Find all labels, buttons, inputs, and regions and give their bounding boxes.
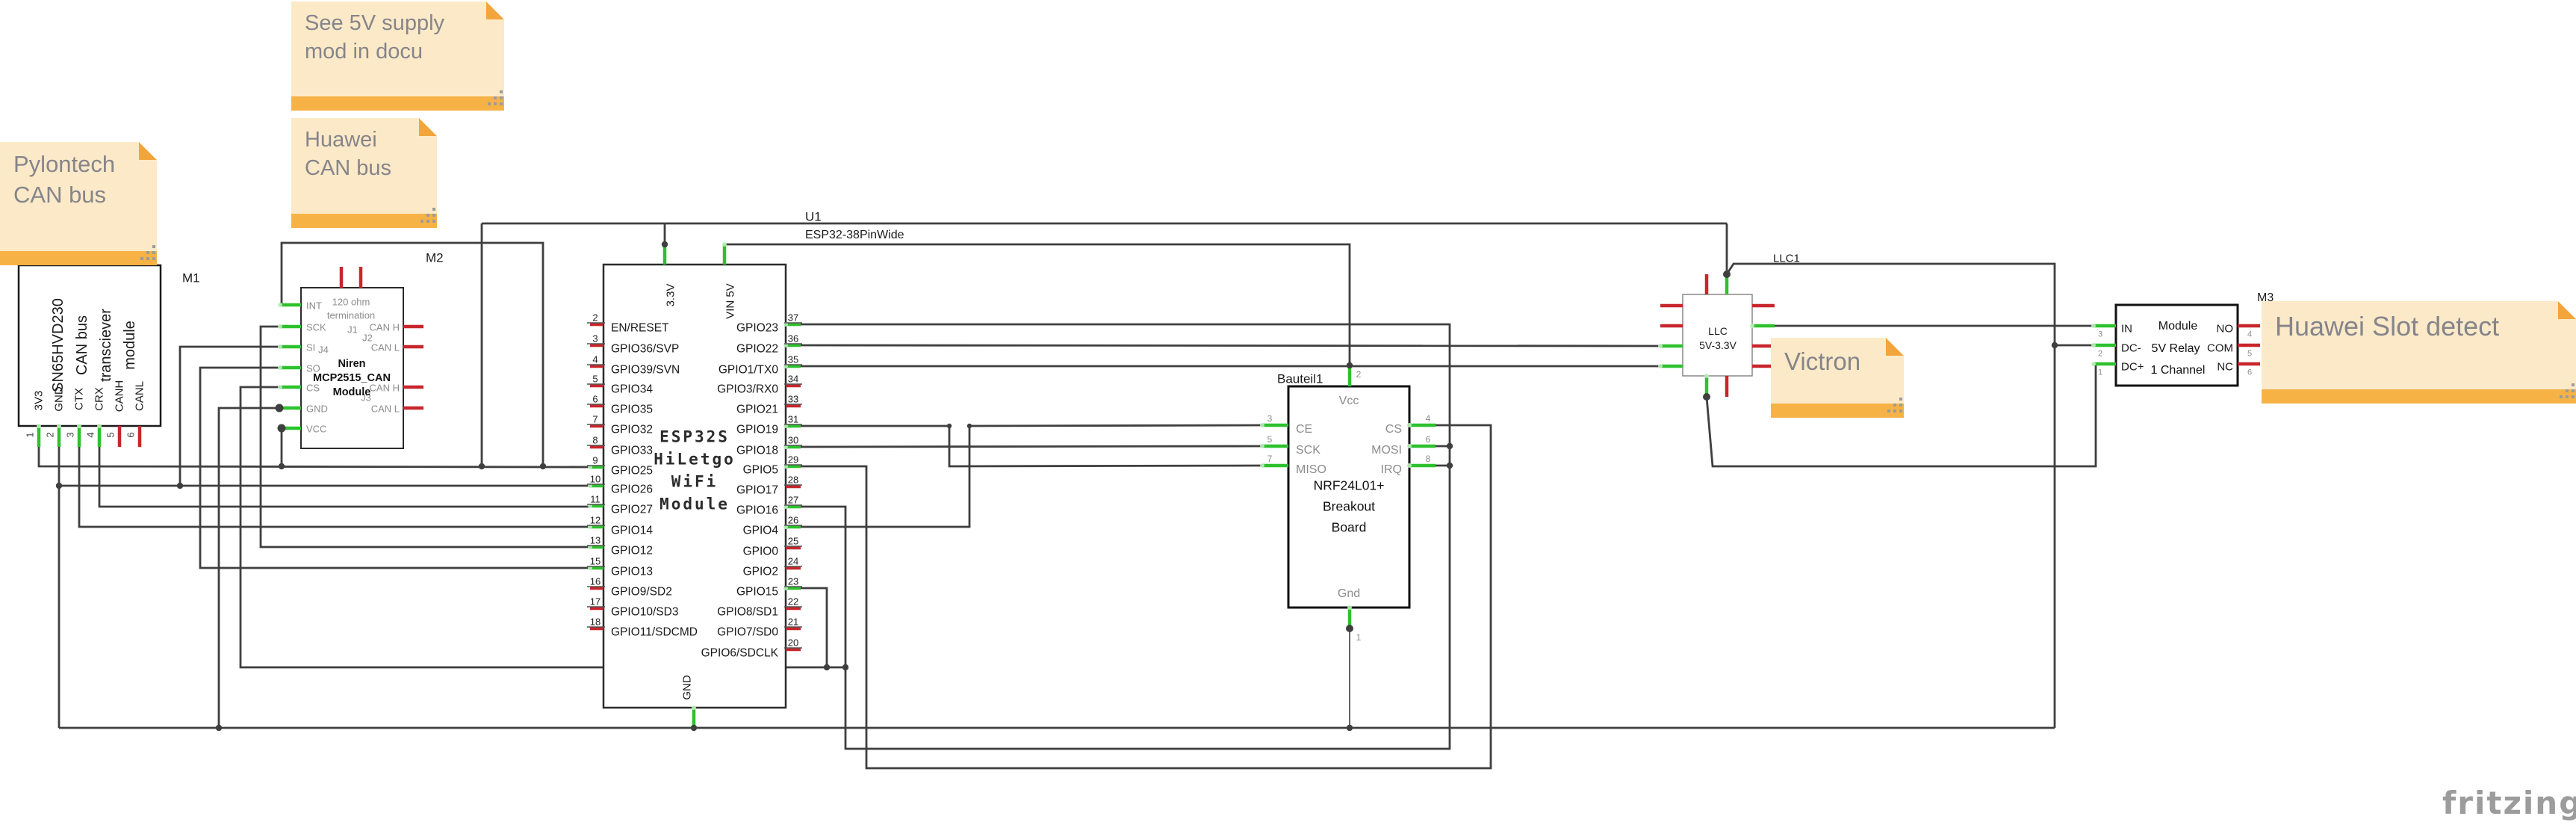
wire[interactable] xyxy=(724,244,1350,365)
wire[interactable] xyxy=(1727,264,2055,728)
wire-junction-dot xyxy=(691,725,697,731)
pin-tip xyxy=(278,303,282,307)
schematic-canvas: M1M2U1ESP32-38PinWideBauteil1LLC1M3SN65H… xyxy=(0,0,2576,825)
pin-tip xyxy=(278,344,282,349)
pin-tip xyxy=(278,324,282,329)
pin-tip xyxy=(77,424,81,428)
pin-tip xyxy=(1260,463,1264,468)
wire-junction-dot xyxy=(1723,271,1731,278)
wire-junction-dot xyxy=(540,463,546,469)
note-pylontech-can-bus[interactable]: Pylontech CAN bus xyxy=(0,142,157,265)
pin-tip xyxy=(37,424,41,428)
fritzing-logo: fritzing xyxy=(2442,785,2576,821)
note-fold-corner xyxy=(419,118,437,136)
note-fold-corner xyxy=(2558,301,2576,319)
wire-junction-dot xyxy=(1703,393,1710,401)
pin-tip xyxy=(1260,423,1264,427)
pin-tip xyxy=(278,365,282,370)
note-text: Huawei Slot detect xyxy=(2275,309,2499,344)
wire-junction-dot xyxy=(278,424,286,433)
wire-junction-dot xyxy=(276,404,284,412)
component-llc1-level-shifter[interactable] xyxy=(1683,294,1752,376)
pin-tip xyxy=(57,424,61,428)
note-resize-grip-icon[interactable] xyxy=(1887,410,1890,412)
note-drag-bar[interactable] xyxy=(291,96,504,111)
wire-junction-dot xyxy=(1447,443,1453,449)
pin-tip xyxy=(1750,324,1754,328)
note-drag-bar[interactable] xyxy=(1771,404,1904,418)
note-resize-grip-icon[interactable] xyxy=(2560,395,2563,398)
note-text: See 5V supply mod in docu xyxy=(305,9,444,67)
wire-junction-dot xyxy=(947,424,952,428)
wire-junction-dot xyxy=(177,483,183,489)
note-fold-corner xyxy=(1886,338,1904,356)
pin-tip xyxy=(2091,324,2096,328)
pin-tip xyxy=(1407,463,1412,468)
note-resize-grip-icon[interactable] xyxy=(488,102,491,105)
wire[interactable] xyxy=(801,425,1262,527)
pin-tip xyxy=(692,705,696,710)
wire-junction-dot xyxy=(56,483,62,489)
wire-junction-dot xyxy=(1347,362,1353,368)
note-drag-bar[interactable] xyxy=(0,251,157,265)
pin-tip xyxy=(1407,423,1412,427)
wire-junction-dot xyxy=(842,664,848,670)
wire-junction-dot xyxy=(1346,625,1353,632)
wire[interactable] xyxy=(79,447,590,527)
component-bauteil1-nrf24l01[interactable] xyxy=(1288,386,1409,608)
wire[interactable] xyxy=(801,345,1660,346)
note-huawei-slot-detect[interactable]: Huawei Slot detect xyxy=(2262,301,2576,404)
note-text: Huawei CAN bus xyxy=(305,126,391,183)
pin-tip xyxy=(1658,364,1663,368)
component-m2-mcp2515-module[interactable] xyxy=(301,288,403,448)
wire-junction-dot xyxy=(479,463,485,469)
wire-junction-dot xyxy=(216,725,222,731)
note-see-5v-supply[interactable]: See 5V supply mod in docu xyxy=(291,1,504,111)
note-fold-corner xyxy=(486,1,504,19)
note-drag-bar[interactable] xyxy=(2262,389,2576,404)
pin-tip xyxy=(722,242,727,247)
note-victron[interactable]: Victron xyxy=(1771,338,1904,418)
note-fold-corner xyxy=(139,142,157,160)
pin-tip xyxy=(2091,343,2096,347)
wire[interactable] xyxy=(99,447,590,507)
note-drag-bar[interactable] xyxy=(291,214,437,228)
wire[interactable] xyxy=(801,588,827,667)
wire-junction-dot xyxy=(1447,463,1453,469)
component-u1-esp32[interactable] xyxy=(603,265,786,708)
note-huawei-can-bus[interactable]: Huawei CAN bus xyxy=(291,118,437,228)
component-m1-can-transceiver[interactable] xyxy=(19,265,161,426)
note-resize-grip-icon[interactable] xyxy=(420,220,423,223)
wire-junction-dot xyxy=(1347,725,1353,731)
component-m3-relay-module[interactable] xyxy=(2116,305,2238,386)
pin-tip xyxy=(1407,444,1412,448)
wire-junction-dot xyxy=(279,463,285,469)
note-text: Victron xyxy=(1784,345,1860,378)
wire-junction-dot xyxy=(967,424,972,428)
pin-tip xyxy=(278,385,282,389)
pin-tip xyxy=(1347,605,1352,610)
wire[interactable] xyxy=(801,446,1262,447)
note-text: Pylontech CAN bus xyxy=(13,149,115,211)
pin-tip xyxy=(1658,344,1663,348)
pin-tip xyxy=(1260,444,1264,448)
pin-tip xyxy=(97,424,102,428)
pin-tip xyxy=(2091,362,2096,366)
wire-junction-dot xyxy=(2052,342,2058,348)
note-resize-grip-icon[interactable] xyxy=(140,257,143,260)
wire[interactable] xyxy=(39,447,590,467)
pin-tip xyxy=(1704,374,1709,378)
wire-junction-dot xyxy=(662,241,668,247)
wire-junction-dot xyxy=(824,664,830,670)
